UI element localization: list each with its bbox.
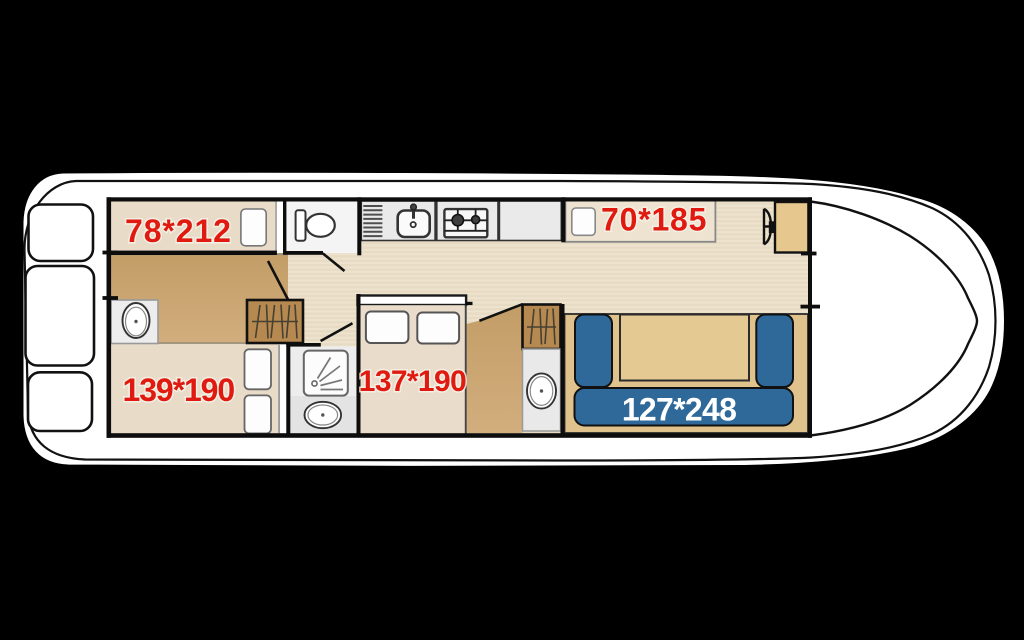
svg-text:78*212: 78*212 (125, 213, 232, 249)
svg-text:127*248: 127*248 (622, 392, 736, 428)
svg-text:137*190: 137*190 (359, 365, 466, 398)
svg-text:70*185: 70*185 (601, 201, 707, 237)
svg-text:139*190: 139*190 (123, 372, 235, 408)
